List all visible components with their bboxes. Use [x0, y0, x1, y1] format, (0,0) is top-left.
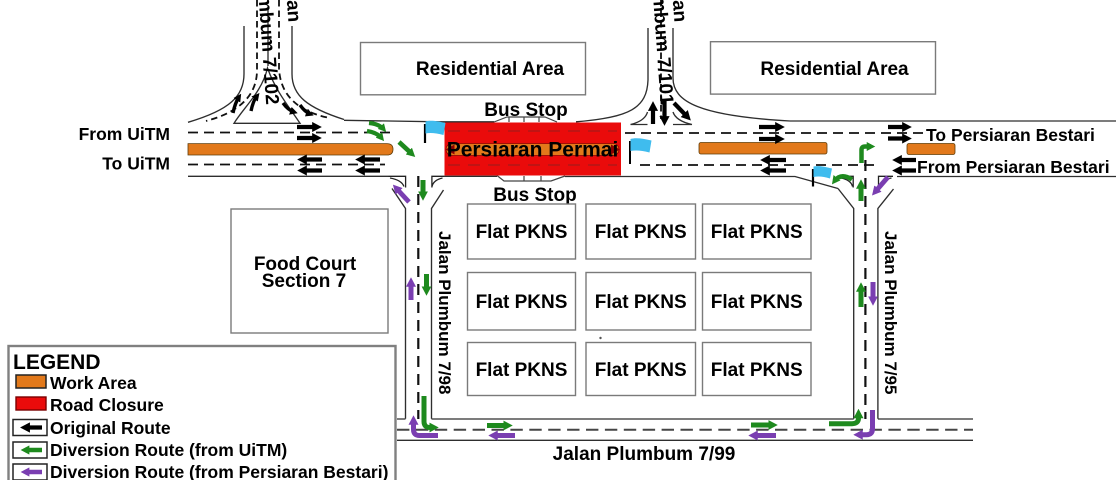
svg-text:Bus Stop: Bus Stop: [493, 185, 576, 206]
svg-text:Flat PKNS: Flat PKNS: [476, 360, 568, 381]
svg-text:Jalan: Jalan: [280, 0, 304, 23]
svg-text:Jalan Plumbum 7/95: Jalan Plumbum 7/95: [881, 231, 900, 394]
svg-text:LEGEND: LEGEND: [13, 351, 101, 374]
svg-text:Original Route: Original Route: [50, 418, 171, 438]
svg-text:Flat PKNS: Flat PKNS: [595, 222, 687, 243]
svg-text:Residential Area: Residential Area: [760, 59, 909, 80]
svg-text:Road Closure: Road Closure: [50, 395, 164, 415]
svg-text:Jalan Plumbum 7/99: Jalan Plumbum 7/99: [553, 444, 736, 465]
svg-text:Flat PKNS: Flat PKNS: [711, 222, 803, 243]
svg-text:From UiTM: From UiTM: [79, 124, 170, 144]
svg-text:Flat PKNS: Flat PKNS: [595, 360, 687, 381]
svg-text:From Persiaran Bestari: From Persiaran Bestari: [917, 157, 1110, 177]
svg-text:Flat PKNS: Flat PKNS: [711, 360, 803, 381]
svg-text:To UiTM: To UiTM: [102, 154, 170, 174]
svg-text:Diversion Route (from Persiara: Diversion Route (from Persiaran Bestari): [50, 462, 388, 480]
svg-text:Bus Stop: Bus Stop: [484, 100, 567, 121]
svg-text:Flat PKNS: Flat PKNS: [476, 292, 568, 313]
svg-text:Flat PKNS: Flat PKNS: [476, 222, 568, 243]
svg-text:To Persiaran Bestari: To Persiaran Bestari: [926, 125, 1095, 145]
svg-text:Diversion Route (from UiTM): Diversion Route (from UiTM): [50, 440, 287, 460]
svg-text:Flat PKNS: Flat PKNS: [595, 292, 687, 313]
svg-text:Flat PKNS: Flat PKNS: [711, 292, 803, 313]
svg-text:Work Area: Work Area: [50, 373, 137, 393]
svg-text:Persiaran Permai: Persiaran Permai: [447, 139, 619, 162]
svg-text:Jalan Plumbum 7/98: Jalan Plumbum 7/98: [435, 231, 454, 394]
svg-text:Section 7: Section 7: [262, 271, 346, 292]
svg-text:Residential Area: Residential Area: [416, 59, 565, 80]
